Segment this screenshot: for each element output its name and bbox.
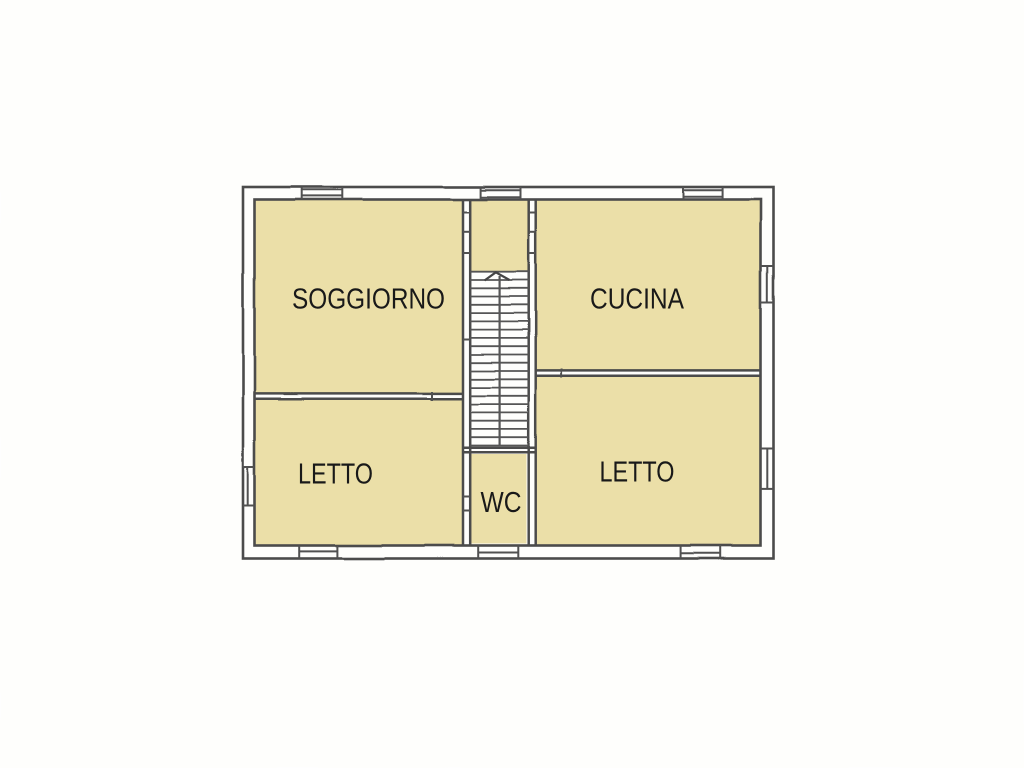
svg-text:WC: WC — [481, 487, 522, 519]
svg-text:SOGGIORNO: SOGGIORNO — [292, 284, 445, 316]
svg-text:LETTO: LETTO — [298, 459, 373, 491]
svg-text:CUCINA: CUCINA — [590, 284, 685, 316]
svg-text:LETTO: LETTO — [600, 457, 675, 489]
